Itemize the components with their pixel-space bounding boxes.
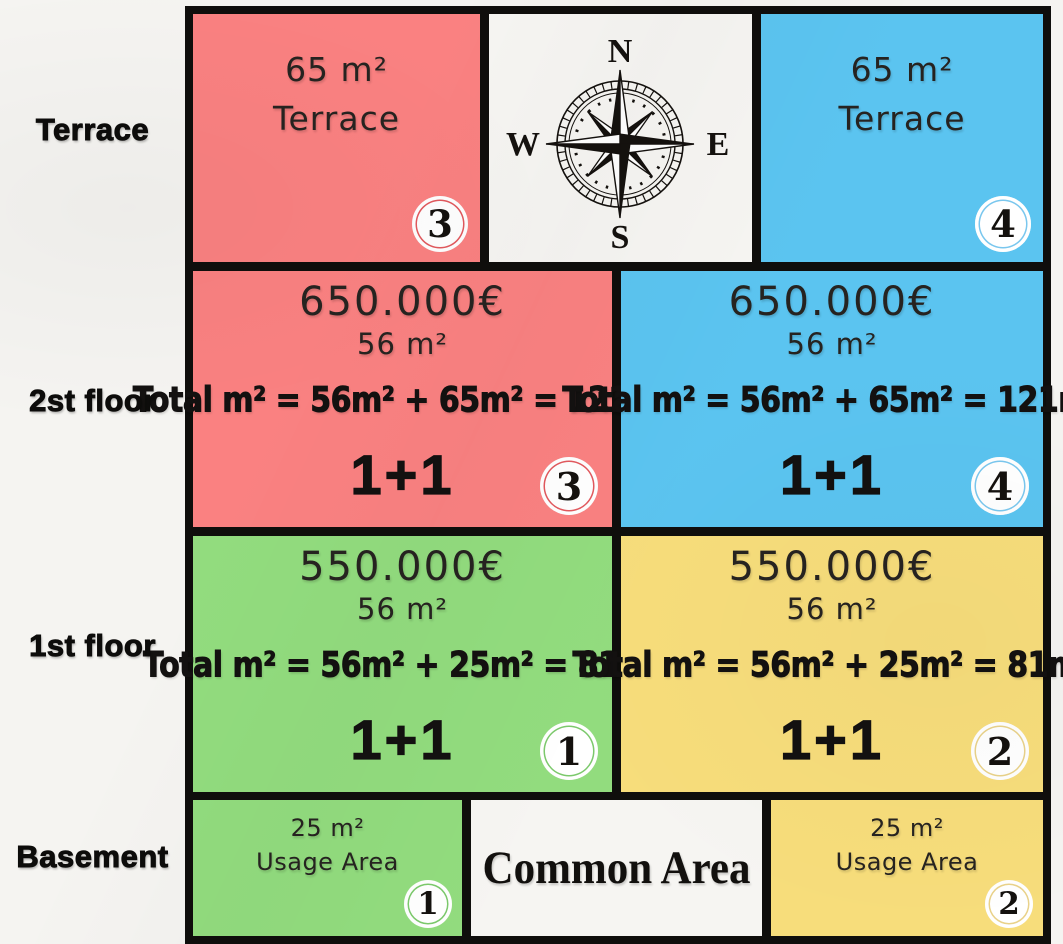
usage-area-label: Usage Area xyxy=(836,848,979,876)
usage-area-label: Usage Area xyxy=(256,848,399,876)
unit-number-badge: 1 xyxy=(404,880,452,928)
room-layout: 1+1 xyxy=(780,707,884,772)
price-value: 650.000€ xyxy=(729,279,936,325)
total-area-formula: Total m² = 56m² + 25m² = 81m² xyxy=(573,645,1063,685)
unit-number-badge: 3 xyxy=(540,457,598,515)
badge-number: 4 xyxy=(990,202,1016,246)
total-area-formula: Total m² = 56m² + 65m² = 121m² xyxy=(562,380,1063,420)
terrace-area-value: 65 m² xyxy=(851,50,954,89)
terrace-label: Terrace xyxy=(273,99,400,138)
unit-4-terrace-cell: 65 m² Terrace 4 xyxy=(761,14,1043,262)
compass-south-label: S xyxy=(611,219,630,256)
area-value: 56 m² xyxy=(787,592,878,626)
row-label-basement: Basement xyxy=(0,839,185,875)
unit-4-floor2-cell: 650.000€ 56 m² Total m² = 56m² + 65m² = … xyxy=(621,271,1043,527)
badge-number: 4 xyxy=(987,464,1013,509)
floorplan-grid: 65 m² Terrace 3 xyxy=(185,6,1051,944)
compass-cell: N S W E xyxy=(489,14,752,262)
terrace-label: Terrace xyxy=(838,99,965,138)
badge-number: 2 xyxy=(987,729,1013,774)
row-label-terrace: Terrace xyxy=(0,112,185,148)
badge-number: 1 xyxy=(556,729,582,774)
room-layout: 1+1 xyxy=(351,707,455,772)
unit-3-floor2-cell: 650.000€ 56 m² Total m² = 56m² + 65m² = … xyxy=(193,271,612,527)
terrace-area-value: 65 m² xyxy=(285,50,388,89)
area-value: 56 m² xyxy=(357,592,448,626)
unit-number-badge: 2 xyxy=(971,722,1029,780)
compass-west-label: W xyxy=(506,126,540,163)
price-value: 650.000€ xyxy=(299,279,506,325)
price-value: 550.000€ xyxy=(299,544,506,590)
unit-number-badge: 1 xyxy=(540,722,598,780)
compass-east-label: E xyxy=(707,126,730,163)
room-layout: 1+1 xyxy=(780,442,884,507)
unit-1-floor1-cell: 550.000€ 56 m² Total m² = 56m² + 25m² = … xyxy=(193,536,612,792)
common-area-cell: Common Area xyxy=(471,800,762,936)
badge-number: 3 xyxy=(556,464,582,509)
unit-2-floor1-cell: 550.000€ 56 m² Total m² = 56m² + 25m² = … xyxy=(621,536,1043,792)
area-value: 56 m² xyxy=(787,327,878,361)
compass-north-label: N xyxy=(608,33,633,70)
unit-number-badge: 2 xyxy=(985,880,1033,928)
unit-number-badge: 4 xyxy=(971,457,1029,515)
compass-rose-icon: N S W E xyxy=(489,14,752,262)
row-label-second-floor: 2st floor xyxy=(0,383,185,419)
badge-number: 2 xyxy=(998,886,1020,922)
price-value: 550.000€ xyxy=(729,544,936,590)
badge-number: 3 xyxy=(427,202,453,246)
usage-area-value: 25 m² xyxy=(291,814,365,842)
row-label-first-floor: 1st floor xyxy=(0,628,185,664)
building-pricing-infographic: Terrace 2st floor 1st floor Basement 65 … xyxy=(0,0,1063,944)
unit-number-badge: 3 xyxy=(412,196,468,252)
unit-number-badge: 4 xyxy=(975,196,1031,252)
area-value: 56 m² xyxy=(357,327,448,361)
unit-3-terrace-cell: 65 m² Terrace 3 xyxy=(193,14,480,262)
unit-2-basement-cell: 25 m² Usage Area 2 xyxy=(771,800,1043,936)
usage-area-value: 25 m² xyxy=(870,814,944,842)
common-area-label: Common Area xyxy=(483,842,751,895)
unit-1-basement-cell: 25 m² Usage Area 1 xyxy=(193,800,462,936)
room-layout: 1+1 xyxy=(351,442,455,507)
badge-number: 1 xyxy=(417,886,439,922)
